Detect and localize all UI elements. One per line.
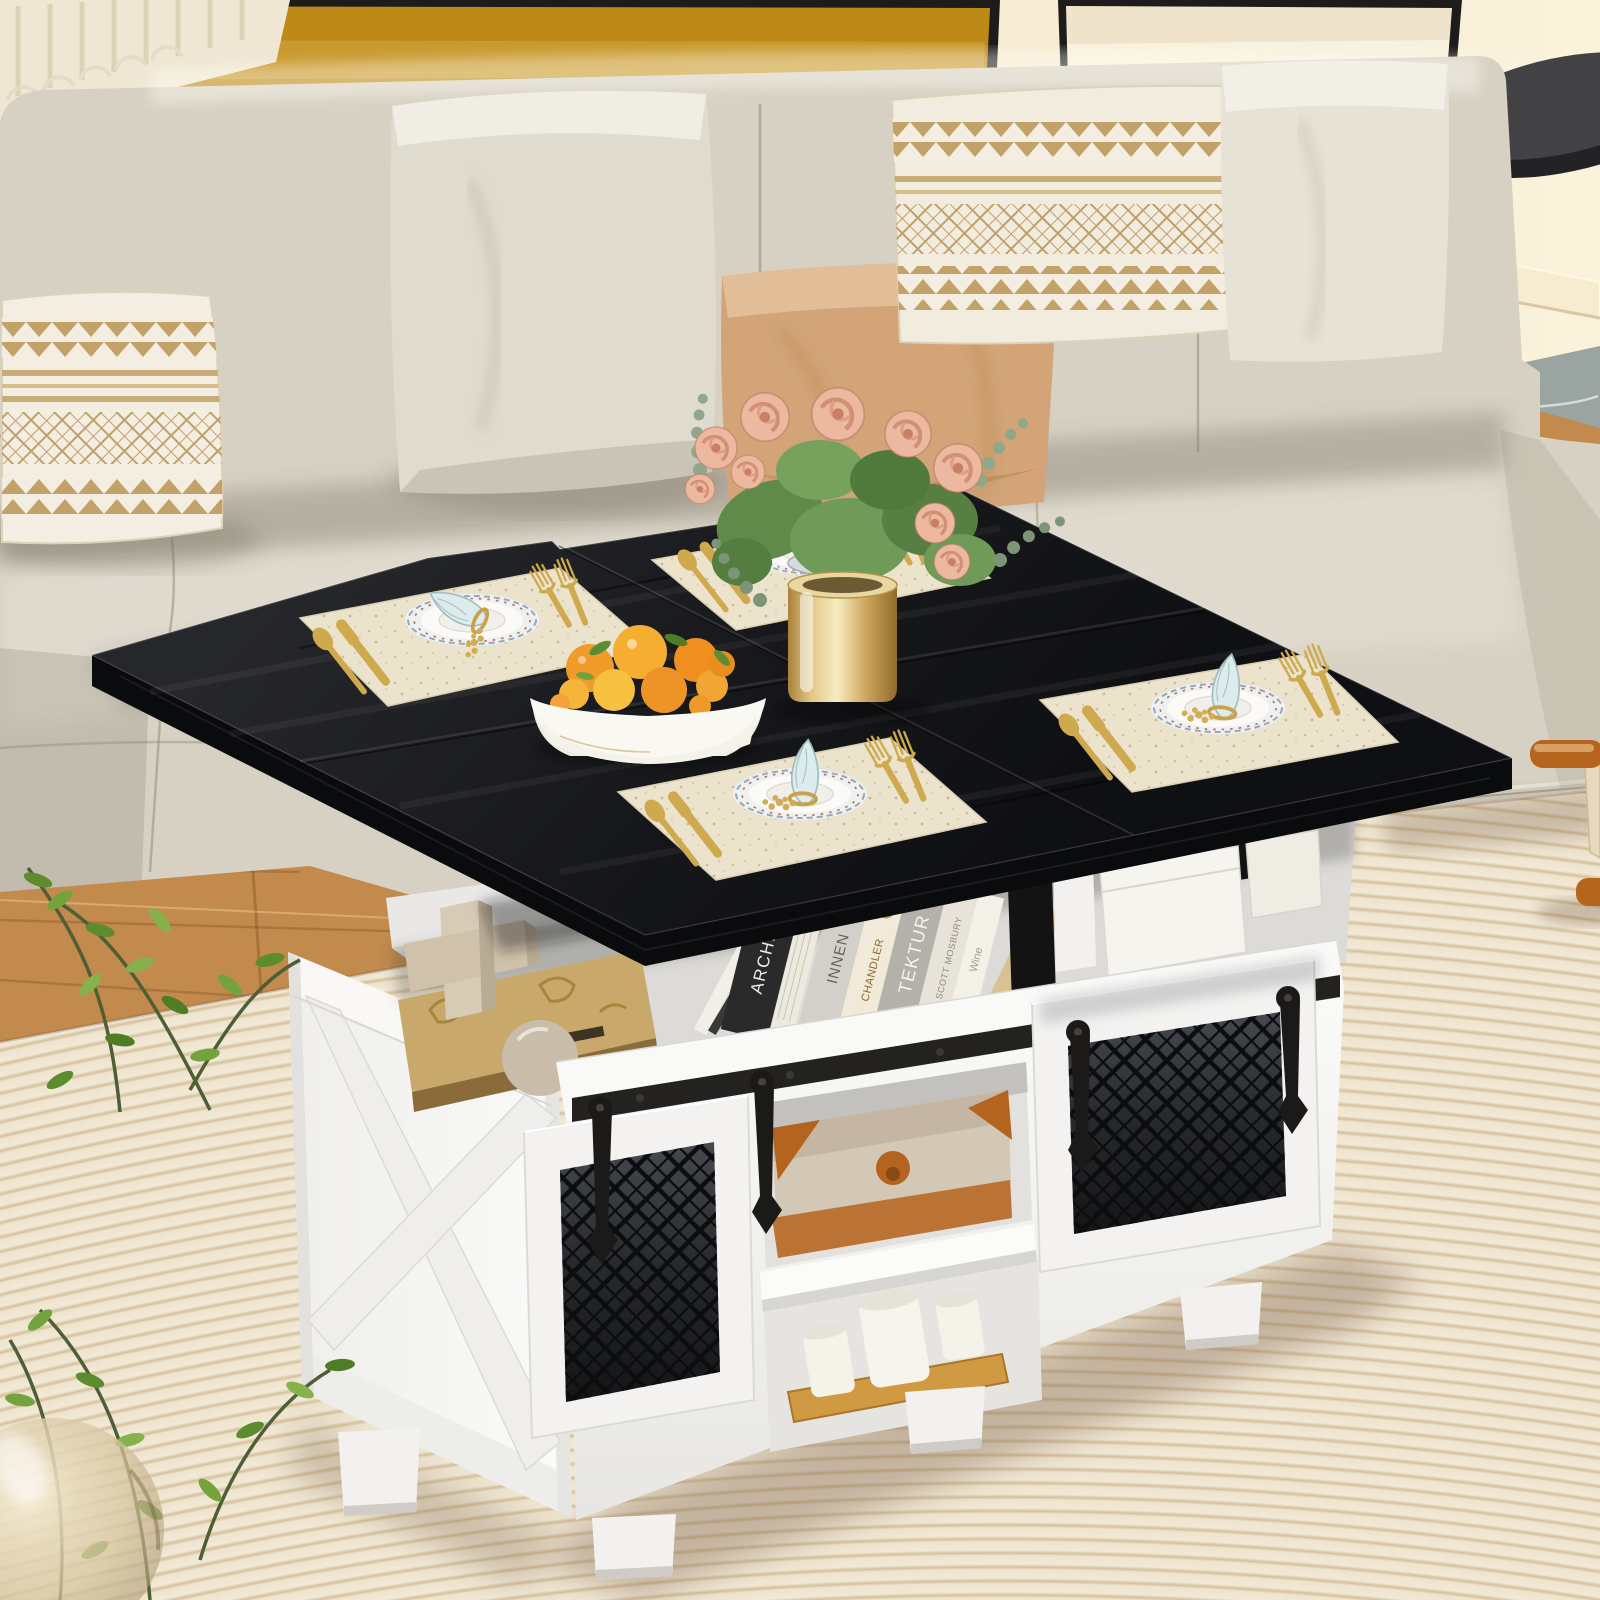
vase-body <box>788 572 897 702</box>
vase-reflection <box>800 592 813 692</box>
living-room-photo: ARCHIT INNEN CHANDLER TEKTUR SCOTT MOSBU… <box>0 0 1600 1600</box>
pillow-boho-left-pattern <box>0 318 230 518</box>
white-box-small <box>1246 830 1322 918</box>
vase-mouth <box>803 577 883 593</box>
pillow-gray <box>390 91 716 494</box>
art-canvas-shadow <box>1066 6 1452 44</box>
trunk-clasp-rivet <box>886 1167 900 1181</box>
pillow-boho-left <box>0 292 230 544</box>
barn-door-left <box>524 1096 754 1438</box>
chair-armrest-highlight <box>1534 744 1594 752</box>
scene-canvas: ARCHIT INNEN CHANDLER TEKTUR SCOTT MOSBU… <box>0 0 1600 1600</box>
pillow-boho-right-pattern <box>880 118 1240 310</box>
chair-leg-knob <box>1576 878 1600 906</box>
pillow-cream-right <box>1221 60 1449 361</box>
pillow-boho-right <box>880 86 1240 344</box>
